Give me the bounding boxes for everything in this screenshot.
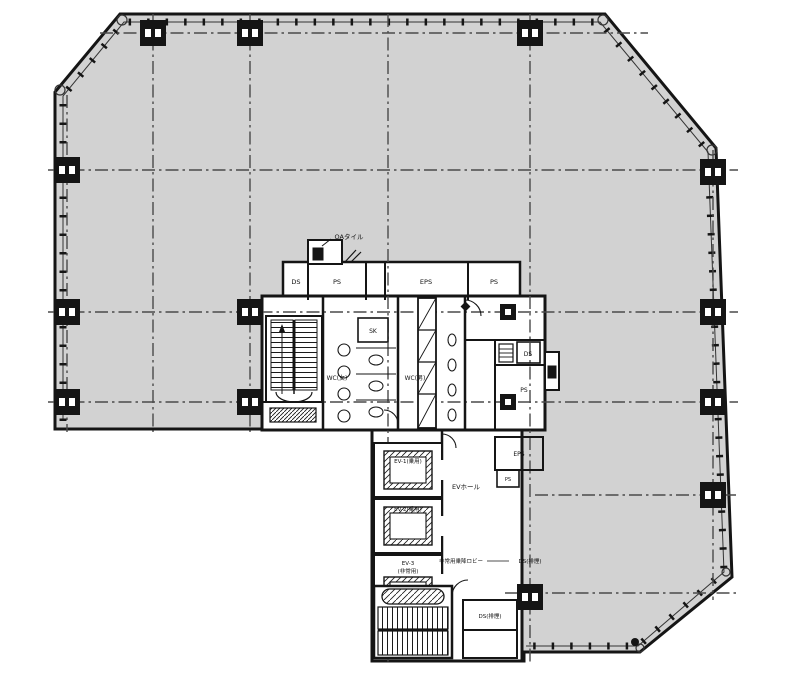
room-label-ev1: EV-1(乗用) (394, 458, 422, 465)
floor-drain-marker (631, 638, 639, 646)
column-marker-small (500, 394, 516, 410)
stair-2-turn-rail (382, 589, 444, 604)
stair-1-entry-mat (270, 408, 316, 422)
column-marker (700, 482, 726, 508)
duct-shaft-stack (418, 298, 436, 428)
bump-equipment (548, 366, 556, 378)
column-marker (237, 20, 263, 46)
column-marker (700, 299, 726, 325)
column-marker (54, 389, 80, 415)
column-marker (237, 299, 263, 325)
toilet-fixture (369, 407, 383, 417)
room-label-ev-hall: EVホール (452, 483, 481, 491)
core-upper-shaft-band (283, 262, 520, 300)
stair-1-flight-right (295, 320, 317, 390)
room-label-eps: EPS (513, 451, 524, 458)
stair-2 (374, 586, 452, 658)
room-label-ds: DS (291, 278, 300, 286)
floor-plan-sheet: OAタイル DS PS EPS PS SK WC(女) WC(男) DS PS … (0, 0, 787, 674)
room-label-wc-women: WC(女) (327, 374, 348, 382)
column-marker (54, 157, 80, 183)
room-label-ev3: EV-3 (402, 561, 415, 567)
label-ds-smoke-leader: DS(排煙) (518, 557, 541, 565)
room-label-ev2: EV-2(乗用) (394, 506, 422, 513)
room-label-eps: EPS (420, 278, 432, 286)
column-marker (237, 389, 263, 415)
room-label-ds-smoke: DS(排煙) (478, 612, 501, 620)
column-marker (700, 159, 726, 185)
floor-plan-drawing: OAタイル DS PS EPS PS SK WC(女) WC(男) DS PS … (0, 0, 787, 674)
stair-2-flight-lower (378, 631, 448, 655)
room-label-ps: PS (333, 278, 341, 286)
room-label-wc-men: WC(男) (405, 375, 426, 382)
room-label-lobby: 非常用乗降ロビー (439, 557, 483, 565)
toilet-fixture (369, 355, 383, 365)
column-marker (54, 299, 80, 325)
room-label-sk: SK (369, 328, 378, 335)
room-label-ps: PS (520, 387, 528, 394)
room-label-ps: PS (505, 477, 511, 483)
column-marker (517, 584, 543, 610)
column-marker (700, 389, 726, 415)
room-label-ds: DS (524, 351, 533, 358)
column-marker-small (500, 304, 516, 320)
note-label: OAタイル (335, 232, 364, 241)
elevator-ev1 (374, 443, 442, 497)
room-label-ev3-sub: (非常用) (398, 567, 419, 575)
stair-2-flight-upper (378, 607, 448, 629)
column-marker (140, 20, 166, 46)
room-label-ps: PS (490, 278, 498, 286)
toilet-fixture (369, 381, 383, 391)
column-marker (517, 20, 543, 46)
